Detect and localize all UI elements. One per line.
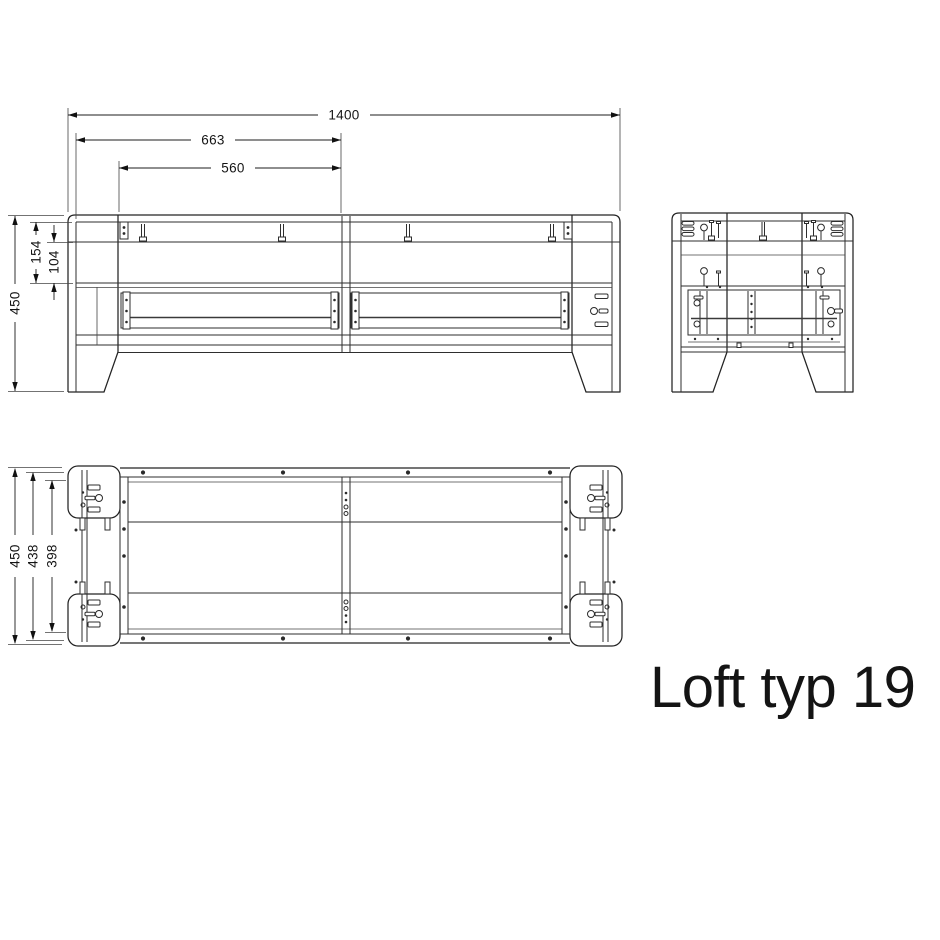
dim-front-left-section: 663 [201, 133, 224, 148]
plan-view-dimensions: 450 438 398 [8, 468, 67, 645]
front-view-dimensions: 1400 663 560 450 154 104 [8, 108, 621, 392]
drawing-sheet: 1400 663 560 450 154 104 [0, 0, 940, 940]
front-panel-right [351, 292, 569, 329]
dim-front-apron-height: 104 [47, 250, 62, 274]
technical-drawing-canvas: 1400 663 560 450 154 104 [0, 0, 940, 940]
dim-plan-frame-depth: 438 [26, 544, 41, 567]
side-elevation-view [672, 213, 853, 392]
plan-leg-fittings [81, 485, 609, 627]
front-panel-left [121, 292, 339, 329]
drawing-title: Loft typ 19 [650, 655, 915, 720]
plan-view [68, 466, 622, 646]
dim-front-panel-width: 560 [221, 161, 244, 176]
dim-plan-inner-depth: 398 [45, 544, 60, 567]
dim-front-top-section: 154 [29, 240, 44, 264]
dim-front-overall-width: 1400 [328, 108, 359, 123]
dim-front-overall-height: 450 [8, 291, 23, 314]
front-corner-plate-right [564, 222, 572, 239]
front-elevation-view [68, 215, 620, 392]
side-top-hardware [682, 221, 843, 241]
front-corner-plate-left [120, 222, 128, 239]
dim-plan-overall-depth: 450 [8, 544, 23, 567]
front-rail-bolts [140, 224, 556, 241]
side-mid-pins [701, 268, 825, 286]
front-side-fittings [591, 294, 609, 327]
